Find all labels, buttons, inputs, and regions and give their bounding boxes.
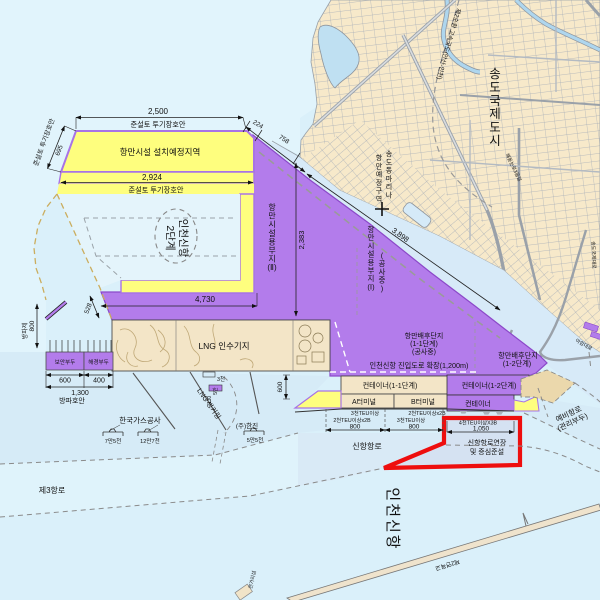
svg-text:컨테이너(1-1단계): 컨테이너(1-1단계) xyxy=(363,381,418,390)
svg-text:1,300: 1,300 xyxy=(71,390,89,397)
svg-text:항만시설 설치예정지역: 항만시설 설치예정지역 xyxy=(120,147,201,157)
svg-text:해경부두: 해경부두 xyxy=(88,358,109,366)
svg-text:(주)한진: (주)한진 xyxy=(236,421,258,430)
svg-text:B터미널: B터미널 xyxy=(411,397,435,406)
svg-text:600: 600 xyxy=(277,381,284,392)
svg-text:3천: 3천 xyxy=(217,375,225,383)
svg-text:12만7천: 12만7천 xyxy=(140,437,160,445)
svg-text:(1-1단계): (1-1단계) xyxy=(410,339,438,348)
svg-text:항만시설용부지(Ⅰ): 항만시설용부지(Ⅰ) xyxy=(367,225,375,291)
svg-text:2단계: 2단계 xyxy=(164,225,176,250)
svg-text:컨테이너(1-2단계): 컨테이너(1-2단계) xyxy=(462,381,517,390)
svg-text:(1-2단계): (1-2단계) xyxy=(503,359,531,368)
svg-text:2,500: 2,500 xyxy=(148,107,169,116)
svg-text:제3항로: 제3항로 xyxy=(39,486,66,495)
svg-text:및 증심준설: 및 증심준설 xyxy=(470,447,504,456)
svg-text:항만배후단지: 항만배후단지 xyxy=(405,331,444,340)
svg-text:한국가스공사: 한국가스공사 xyxy=(119,416,160,425)
svg-text:400: 400 xyxy=(93,378,105,385)
svg-text:방파호안: 방파호안 xyxy=(59,396,85,405)
svg-text:5만: 5만 xyxy=(212,387,219,395)
svg-text:준설토 투기장호안: 준설토 투기장호안 xyxy=(131,120,186,129)
svg-text:항만시설용부지(Ⅱ): 항만시설용부지(Ⅱ) xyxy=(267,203,277,272)
svg-text:(공사중): (공사중) xyxy=(412,347,436,356)
svg-text:2,924: 2,924 xyxy=(142,173,163,182)
svg-text:LNG 인수기지: LNG 인수기지 xyxy=(198,341,249,351)
svg-text:4,730: 4,730 xyxy=(195,295,216,304)
svg-text:인천신항 진입도로 확장(1,200m): 인천신항 진입도로 확장(1,200m) xyxy=(370,361,469,370)
svg-text:A터미널: A터미널 xyxy=(352,397,376,406)
svg-text:인천신항: 인천신항 xyxy=(384,487,401,550)
svg-text:800: 800 xyxy=(350,424,361,431)
svg-text:인천신항: 인천신항 xyxy=(177,219,189,258)
svg-text:3천TEU이상: 3천TEU이상 xyxy=(351,409,379,417)
svg-text:항만예정구역: 항만예정구역 xyxy=(376,153,383,204)
svg-text:신항항로: 신항항로 xyxy=(352,442,381,451)
svg-text:2,383: 2,383 xyxy=(297,231,306,250)
svg-text:컨테이너: 컨테이너 xyxy=(465,399,491,408)
svg-text:준설토 투기장호안: 준설토 투기장호안 xyxy=(129,186,184,195)
svg-text:800: 800 xyxy=(409,424,420,431)
svg-text:송도국제대로: 송도국제대로 xyxy=(590,241,598,269)
svg-text:방파제: 방파제 xyxy=(21,323,29,340)
svg-text:보안부두: 보안부두 xyxy=(55,359,76,366)
svg-text:송도국제도시: 송도국제도시 xyxy=(489,67,501,148)
svg-text:600: 600 xyxy=(59,378,71,385)
svg-text:800: 800 xyxy=(29,320,36,331)
svg-text:1,050: 1,050 xyxy=(473,426,490,433)
svg-text:7만5천: 7만5천 xyxy=(105,437,122,445)
svg-text:2천TEU이상x2B: 2천TEU이상x2B xyxy=(408,409,446,417)
